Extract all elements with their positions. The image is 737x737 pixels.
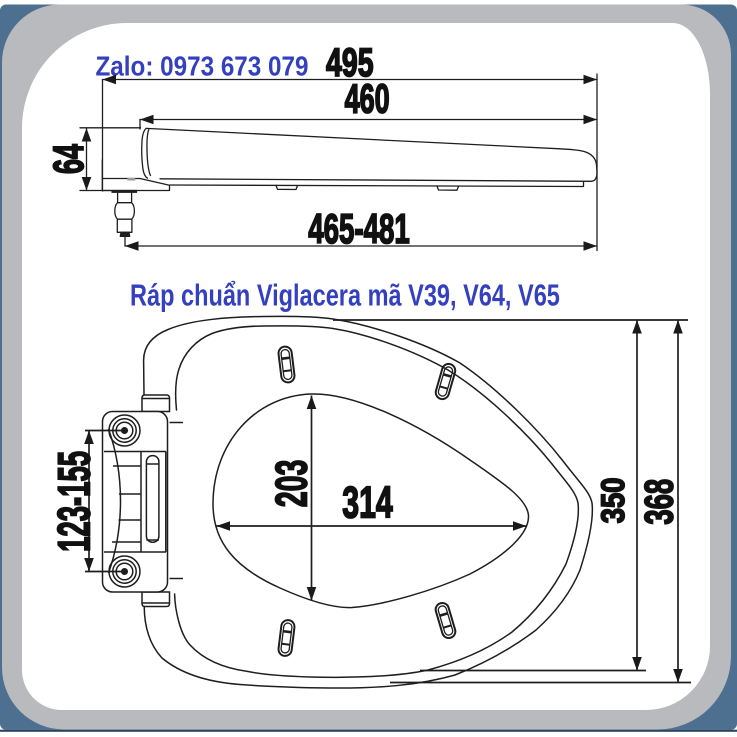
svg-text:314: 314 — [342, 479, 392, 528]
svg-text:368: 368 — [637, 479, 681, 525]
svg-text:Zalo: 0973 673 079: Zalo: 0973 673 079 — [96, 50, 309, 82]
svg-text:350: 350 — [596, 478, 631, 524]
svg-text:203: 203 — [266, 460, 316, 508]
svg-text:Ráp chuẩn Viglacera mã V39, V6: Ráp chuẩn Viglacera mã V39, V64, V65 — [130, 278, 560, 313]
svg-text:123-155: 123-155 — [48, 451, 99, 552]
svg-text:460: 460 — [345, 77, 390, 122]
svg-text:465-481: 465-481 — [308, 205, 409, 252]
svg-text:64: 64 — [45, 144, 93, 174]
